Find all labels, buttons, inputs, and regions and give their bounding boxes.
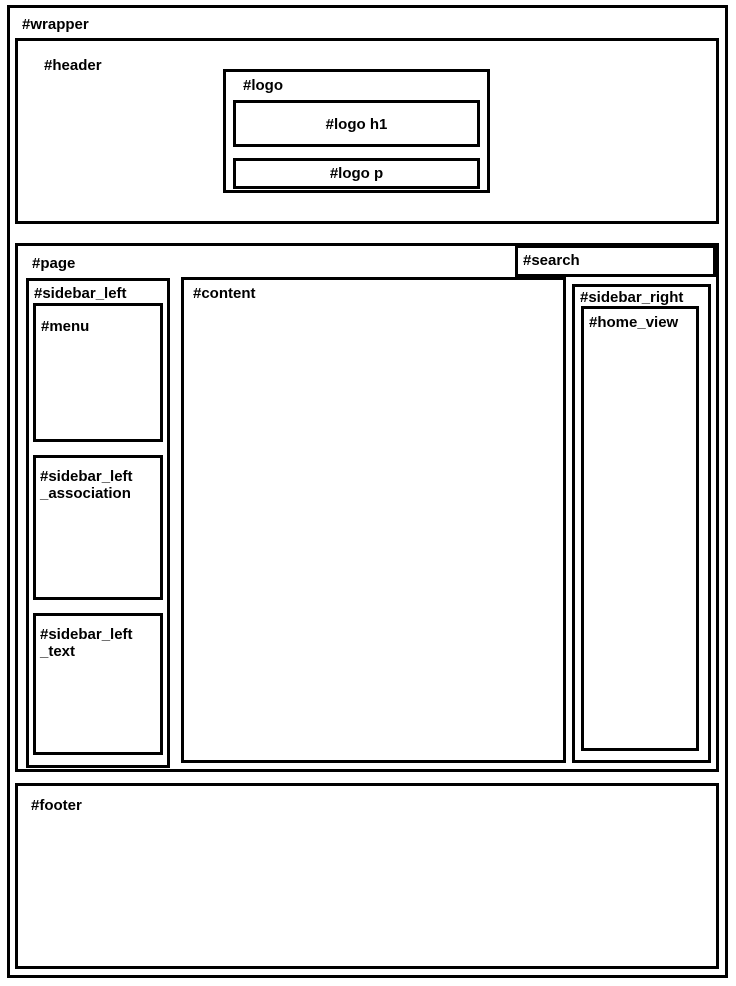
logo-p-label: #logo p — [236, 165, 477, 182]
footer-box: #footer — [15, 783, 719, 969]
sidebar-left-association-box: #sidebar_left _association — [33, 455, 163, 600]
menu-label: #menu — [41, 318, 89, 335]
sidebar-left-text-box: #sidebar_left _text — [33, 613, 163, 755]
content-label: #content — [193, 285, 256, 302]
sidebar-left-text-label-line2: _text — [40, 643, 133, 660]
logo-h1-label: #logo h1 — [236, 116, 477, 133]
sidebar-left-text-label: #sidebar_left _text — [40, 626, 133, 660]
footer-label: #footer — [31, 797, 82, 814]
home-view-label: #home_view — [589, 314, 678, 331]
sidebar-left-association-label: #sidebar_left _association — [40, 468, 133, 502]
search-box: #search — [515, 245, 716, 277]
search-label: #search — [523, 252, 580, 269]
sidebar-right-label: #sidebar_right — [580, 289, 683, 306]
logo-p-box: #logo p — [233, 158, 480, 189]
menu-box: #menu — [33, 303, 163, 442]
page-label: #page — [32, 255, 75, 272]
sidebar-left-label: #sidebar_left — [34, 285, 127, 302]
home-view-box: #home_view — [581, 306, 699, 751]
sidebar-left-association-label-line2: _association — [40, 485, 133, 502]
layout-wireframe-diagram: #wrapper #header #logo #logo h1 #logo p … — [0, 0, 736, 986]
header-label: #header — [44, 57, 102, 74]
wrapper-label: #wrapper — [22, 16, 89, 33]
logo-label: #logo — [243, 77, 283, 94]
logo-h1-box: #logo h1 — [233, 100, 480, 147]
content-box: #content — [181, 277, 566, 763]
sidebar-left-text-label-line1: #sidebar_left — [40, 626, 133, 643]
sidebar-left-association-label-line1: #sidebar_left — [40, 468, 133, 485]
